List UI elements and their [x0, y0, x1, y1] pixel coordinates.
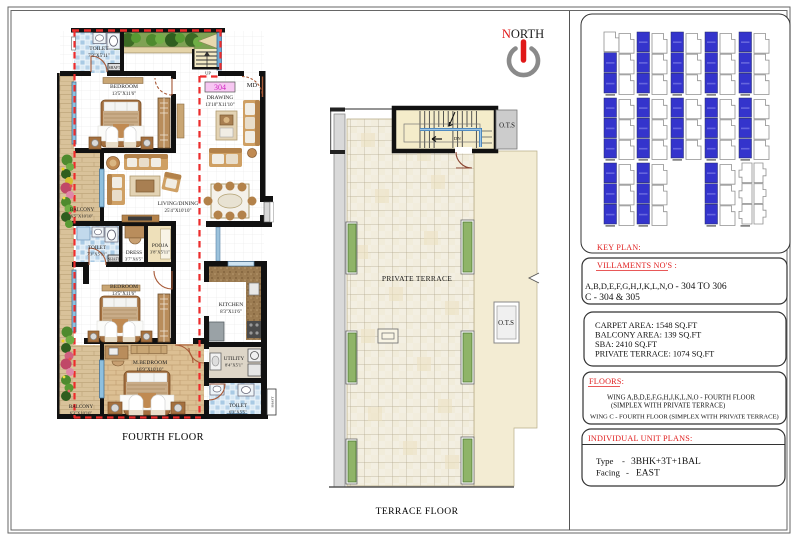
svg-text:WING A,B,D,E,F,G,H,J,K,L,N,O: WING A,B,D,E,F,G,H,J,K,L,N,O - FOURTH FL… [607, 395, 755, 402]
svg-text:CARPET AREA: 1548 SQ.FT: CARPET AREA: 1548 SQ.FT [595, 321, 697, 330]
svg-text:O.T.S: O.T.S [498, 320, 514, 327]
svg-text:SHAFT: SHAFT [271, 396, 275, 408]
svg-text:LIVING/DINING: LIVING/DINING [158, 201, 199, 207]
svg-text:DN: DN [454, 136, 461, 141]
svg-text:POOJA: POOJA [152, 243, 168, 249]
svg-text:SHAFT: SHAFT [108, 257, 120, 261]
svg-text:SBA: 2410 SQ.FT: SBA: 2410 SQ.FT [595, 340, 657, 349]
svg-text:O.T.S: O.T.S [499, 123, 515, 130]
svg-text:TOILET: TOILET [229, 403, 248, 409]
svg-text:13'5"X11'6": 13'5"X11'6" [112, 292, 136, 297]
svg-text:NORTH: NORTH [502, 27, 544, 41]
svg-text:304: 304 [214, 83, 226, 92]
svg-text:Facing-EAST: Facing-EAST [596, 468, 660, 479]
svg-text:WING C - FOURTH FLOOR (SIMPLE: WING C - FOURTH FLOOR (SIMPLEX WITH PRIV… [590, 414, 779, 421]
svg-text:BEDROOM: BEDROOM [110, 284, 138, 290]
svg-text:KEY PLAN:: KEY PLAN: [597, 243, 641, 252]
svg-text:TOILET: TOILET [88, 245, 107, 251]
svg-text:UP: UP [205, 71, 211, 76]
svg-text:13'10"X11'10": 13'10"X11'10" [205, 103, 234, 108]
svg-text:3'8"X5'11": 3'8"X5'11" [150, 250, 170, 255]
svg-text:SHAFT: SHAFT [109, 66, 121, 70]
svg-text:FOURTH FLOOR: FOURTH FLOOR [122, 432, 204, 443]
svg-text:7'3"X5'11": 7'3"X5'11" [88, 54, 110, 59]
svg-text:8'3"X11'6": 8'3"X11'6" [220, 310, 242, 315]
svg-text:UTILITY: UTILITY [224, 356, 245, 362]
svg-text:INDIVIDUAL UNIT PLANS:: INDIVIDUAL UNIT PLANS: [588, 434, 692, 443]
svg-text:7'3"X5'11": 7'3"X5'11" [87, 252, 107, 257]
svg-text:6'3"X10'10": 6'3"X10'10" [70, 411, 93, 416]
svg-text:6'3"X5'5": 6'3"X5'5" [229, 410, 247, 415]
svg-text:25'4"X10'10": 25'4"X10'10" [165, 209, 192, 214]
svg-text:M.BEDROOM: M.BEDROOM [133, 360, 167, 366]
svg-text:16'9"X10'10": 16'9"X10'10" [137, 368, 164, 373]
svg-text:13'5"X11'6": 13'5"X11'6" [112, 92, 136, 97]
svg-text:(SIMPLEX WITH PRIVATE TERRACE): (SIMPLEX WITH PRIVATE TERRACE) [611, 403, 725, 410]
svg-text:VILLAMENTS NO'S :: VILLAMENTS NO'S : [597, 261, 677, 270]
svg-text:Type-3BHK+3T+1BAL: Type-3BHK+3T+1BAL [596, 456, 701, 467]
svg-text:8'4"X5'1": 8'4"X5'1" [225, 363, 243, 368]
svg-text:BALCONY: BALCONY [69, 405, 94, 410]
svg-text:DRAWING: DRAWING [207, 95, 234, 101]
svg-text:TERRACE FLOOR: TERRACE FLOOR [376, 506, 459, 517]
svg-text:BEDROOM: BEDROOM [110, 84, 138, 90]
svg-text:FLOORS:: FLOORS: [589, 377, 624, 386]
svg-text:6'5"X10'10": 6'5"X10'10" [71, 214, 94, 219]
svg-text:PRIVATE TERRACE: 1074 SQ.FT: PRIVATE TERRACE: 1074 SQ.FT [595, 350, 714, 359]
svg-text:BALCONY: BALCONY [70, 208, 95, 213]
svg-text:KITCHEN: KITCHEN [219, 302, 244, 308]
svg-text:BALCONY AREA: 139 SQ.FT: BALCONY AREA: 139 SQ.FT [595, 331, 701, 340]
svg-text:A,B,D,E,F,G,H,J,K,L,N,O - 304: A,B,D,E,F,G,H,J,K,L,N,O - 304 TO 306 [585, 282, 727, 292]
svg-text:PRIVATE TERRACE: PRIVATE TERRACE [382, 274, 452, 283]
svg-text:3'7"X6'5": 3'7"X6'5" [125, 257, 143, 262]
svg-text:MD: MD [247, 82, 258, 89]
svg-text:TOILET: TOILET [89, 46, 109, 52]
svg-text:C - 304 & 305: C - 304 & 305 [585, 293, 640, 303]
svg-text:DRESS: DRESS [126, 250, 142, 256]
